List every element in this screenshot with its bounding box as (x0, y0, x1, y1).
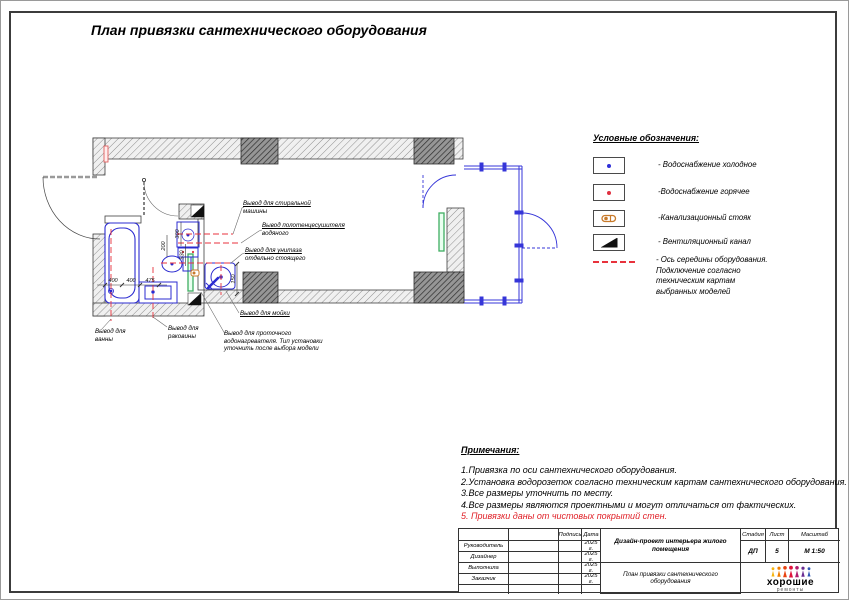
svg-text:150: 150 (231, 273, 237, 283)
riser-marker (104, 146, 108, 162)
tb-date-header: Дата (582, 529, 601, 541)
tb-stage-value: ДП (741, 541, 766, 563)
tb-cell (559, 563, 582, 574)
tb-cell (509, 541, 559, 552)
svg-text:530: 530 (180, 249, 186, 259)
note-line: 1.Привязка по оси сантехнического оборуд… (461, 465, 839, 477)
legend-item-equipment-axis: - Ось середины оборудования. Подключение… (593, 255, 768, 297)
tb-cell (559, 552, 582, 563)
note-line: 4.Все размеры являются проектными и могу… (461, 500, 839, 512)
equipment-axis-icon (593, 261, 635, 263)
tb-project-title: Дизайн-проект интерьера жилого помещения (601, 529, 741, 563)
bathtub (105, 223, 139, 303)
balcony-glazing (464, 163, 523, 305)
legend: Условные обозначения: - Водоснабжение хо… (593, 133, 843, 143)
tb-role: Руководитель (459, 541, 509, 552)
tb-cell (509, 529, 559, 541)
sewer-riser-icon (593, 210, 625, 227)
tb-role: Выполнила (459, 563, 509, 574)
note-line: 3.Все размеры уточнить по месту. (461, 488, 839, 500)
note-line-highlight: 5. Привязки даны от чистовых покрытий ст… (461, 511, 839, 523)
tb-drawing-title: План привязки сантехнического оборудован… (601, 563, 741, 594)
title-block: Подпись Дата Дизайн-проект интерьера жил… (458, 528, 839, 593)
tb-scale-header: Масштаб (789, 529, 840, 541)
tb-cell (582, 585, 601, 594)
tb-date: 2025 г. (582, 563, 601, 574)
dimension-lines (97, 222, 239, 296)
wall-columns (241, 138, 464, 303)
bathroom-door (142, 178, 178, 216)
toilet (162, 256, 191, 272)
tb-date: 2025 г. (582, 552, 601, 563)
legend-item-sewer-riser: -Канализационный стояк (593, 210, 751, 227)
sewer-riser-symbol (191, 270, 199, 276)
notes: Примечания: 1.Привязка по оси сантехниче… (461, 445, 839, 523)
tb-sheet-value: 5 (766, 541, 789, 563)
legend-item-cold-water: - Водоснабжение холодное (593, 157, 757, 174)
tb-cell (509, 563, 559, 574)
callout-bathtub: Вывод для ванны (95, 328, 126, 343)
entrance-door (43, 177, 100, 239)
callout-toilet: Вывод для унитаза отдельно стоящего (245, 247, 305, 262)
logo-subtitle: ремонты (777, 587, 804, 593)
tb-date: 2025 г. (582, 574, 601, 585)
tb-scale-value: М 1:50 (789, 541, 840, 563)
vent-channel-icon (593, 234, 625, 251)
tb-logo: хорошие ремонты (741, 563, 840, 594)
legend-item-vent-channel: - Вентиляционный канал (593, 234, 751, 251)
callout-sink: Вывод для мойки (240, 310, 290, 318)
legend-item-hot-water: -Водоснабжение горячее (593, 184, 750, 201)
hot-water-icon (593, 184, 625, 201)
tb-cell (509, 552, 559, 563)
svg-text:475: 475 (145, 278, 155, 284)
callout-washing-machine: Вывод для стиральной машины (243, 200, 311, 215)
callout-washbasin: Вывод для раковины (168, 325, 199, 340)
tb-role: Дизайнер (459, 552, 509, 563)
callout-water-heater: Вывод для проточного водонагревателя. Ти… (224, 330, 323, 353)
svg-text:300: 300 (175, 228, 181, 238)
tb-cell (509, 585, 559, 594)
tb-cell (459, 529, 509, 541)
tb-cell (509, 574, 559, 585)
logo-title: хорошие (767, 578, 814, 587)
cold-water-icon (593, 157, 625, 174)
logo-people-icon (769, 565, 813, 578)
tb-cell (559, 541, 582, 552)
svg-text:200: 200 (161, 240, 167, 251)
tb-signature-header: Подпись (559, 529, 582, 541)
drawing-sheet: План привязки сантехнического оборудован… (0, 0, 849, 600)
tb-stage-header: Стадия (741, 529, 766, 541)
tb-role: Заказчик (459, 574, 509, 585)
callout-towel-dryer: Вывод полотенцесушителя водяного (262, 222, 345, 237)
svg-text:400: 400 (126, 278, 136, 284)
tb-cell (559, 574, 582, 585)
notes-heading: Примечания: (461, 445, 839, 455)
svg-text:400: 400 (108, 278, 118, 284)
legend-heading: Условные обозначения: (593, 133, 843, 143)
tb-sheet-header: Лист (766, 529, 789, 541)
tb-date: 2025 г. (582, 541, 601, 552)
tb-cell (559, 585, 582, 594)
tb-cell (459, 585, 509, 594)
note-line: 2.Установка водорозеток согласно техниче… (461, 477, 839, 489)
